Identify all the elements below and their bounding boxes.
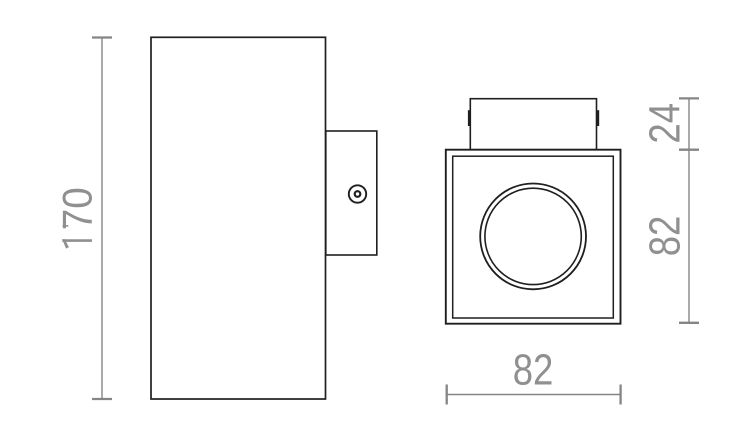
svg-text:24: 24 bbox=[639, 103, 689, 144]
svg-text:82: 82 bbox=[639, 216, 689, 257]
svg-text:70: 70 bbox=[53, 187, 101, 230]
svg-text:82: 82 bbox=[513, 344, 554, 394]
